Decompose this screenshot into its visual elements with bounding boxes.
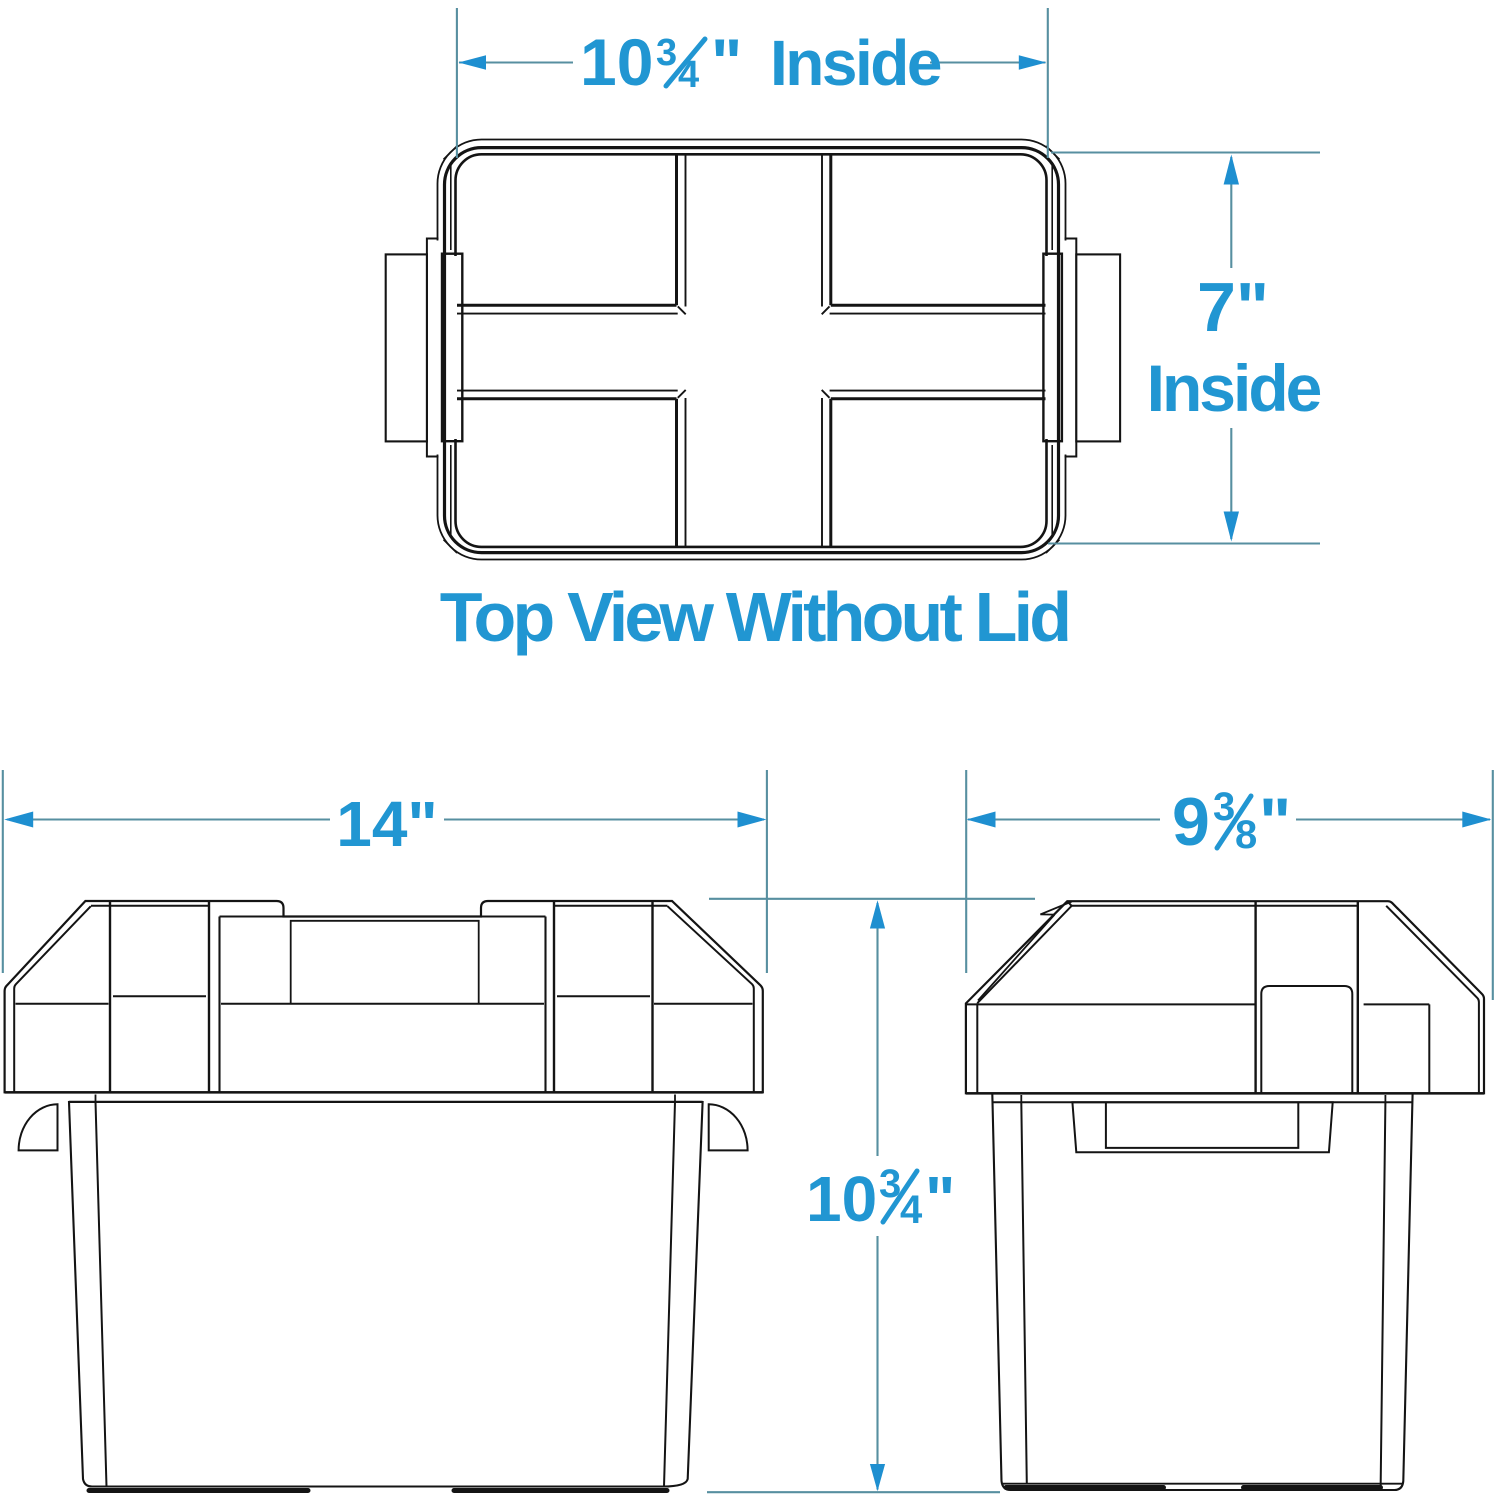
svg-text:Inside: Inside: [770, 27, 941, 99]
svg-text:8: 8: [1235, 813, 1257, 857]
svg-text:": ": [925, 1163, 955, 1235]
svg-text:4: 4: [678, 54, 699, 96]
svg-text:Top View Without Lid: Top View Without Lid: [440, 578, 1068, 656]
svg-text:Inside: Inside: [1147, 351, 1321, 425]
svg-text:7": 7": [1197, 268, 1269, 346]
svg-text:10: 10: [580, 25, 653, 99]
svg-text:10: 10: [806, 1163, 877, 1235]
svg-text:3: 3: [656, 32, 677, 74]
svg-text:": ": [711, 25, 742, 99]
svg-text:4: 4: [900, 1188, 923, 1232]
svg-text:": ": [1259, 784, 1291, 860]
svg-text:14": 14": [336, 788, 438, 860]
svg-text:9: 9: [1172, 784, 1210, 860]
